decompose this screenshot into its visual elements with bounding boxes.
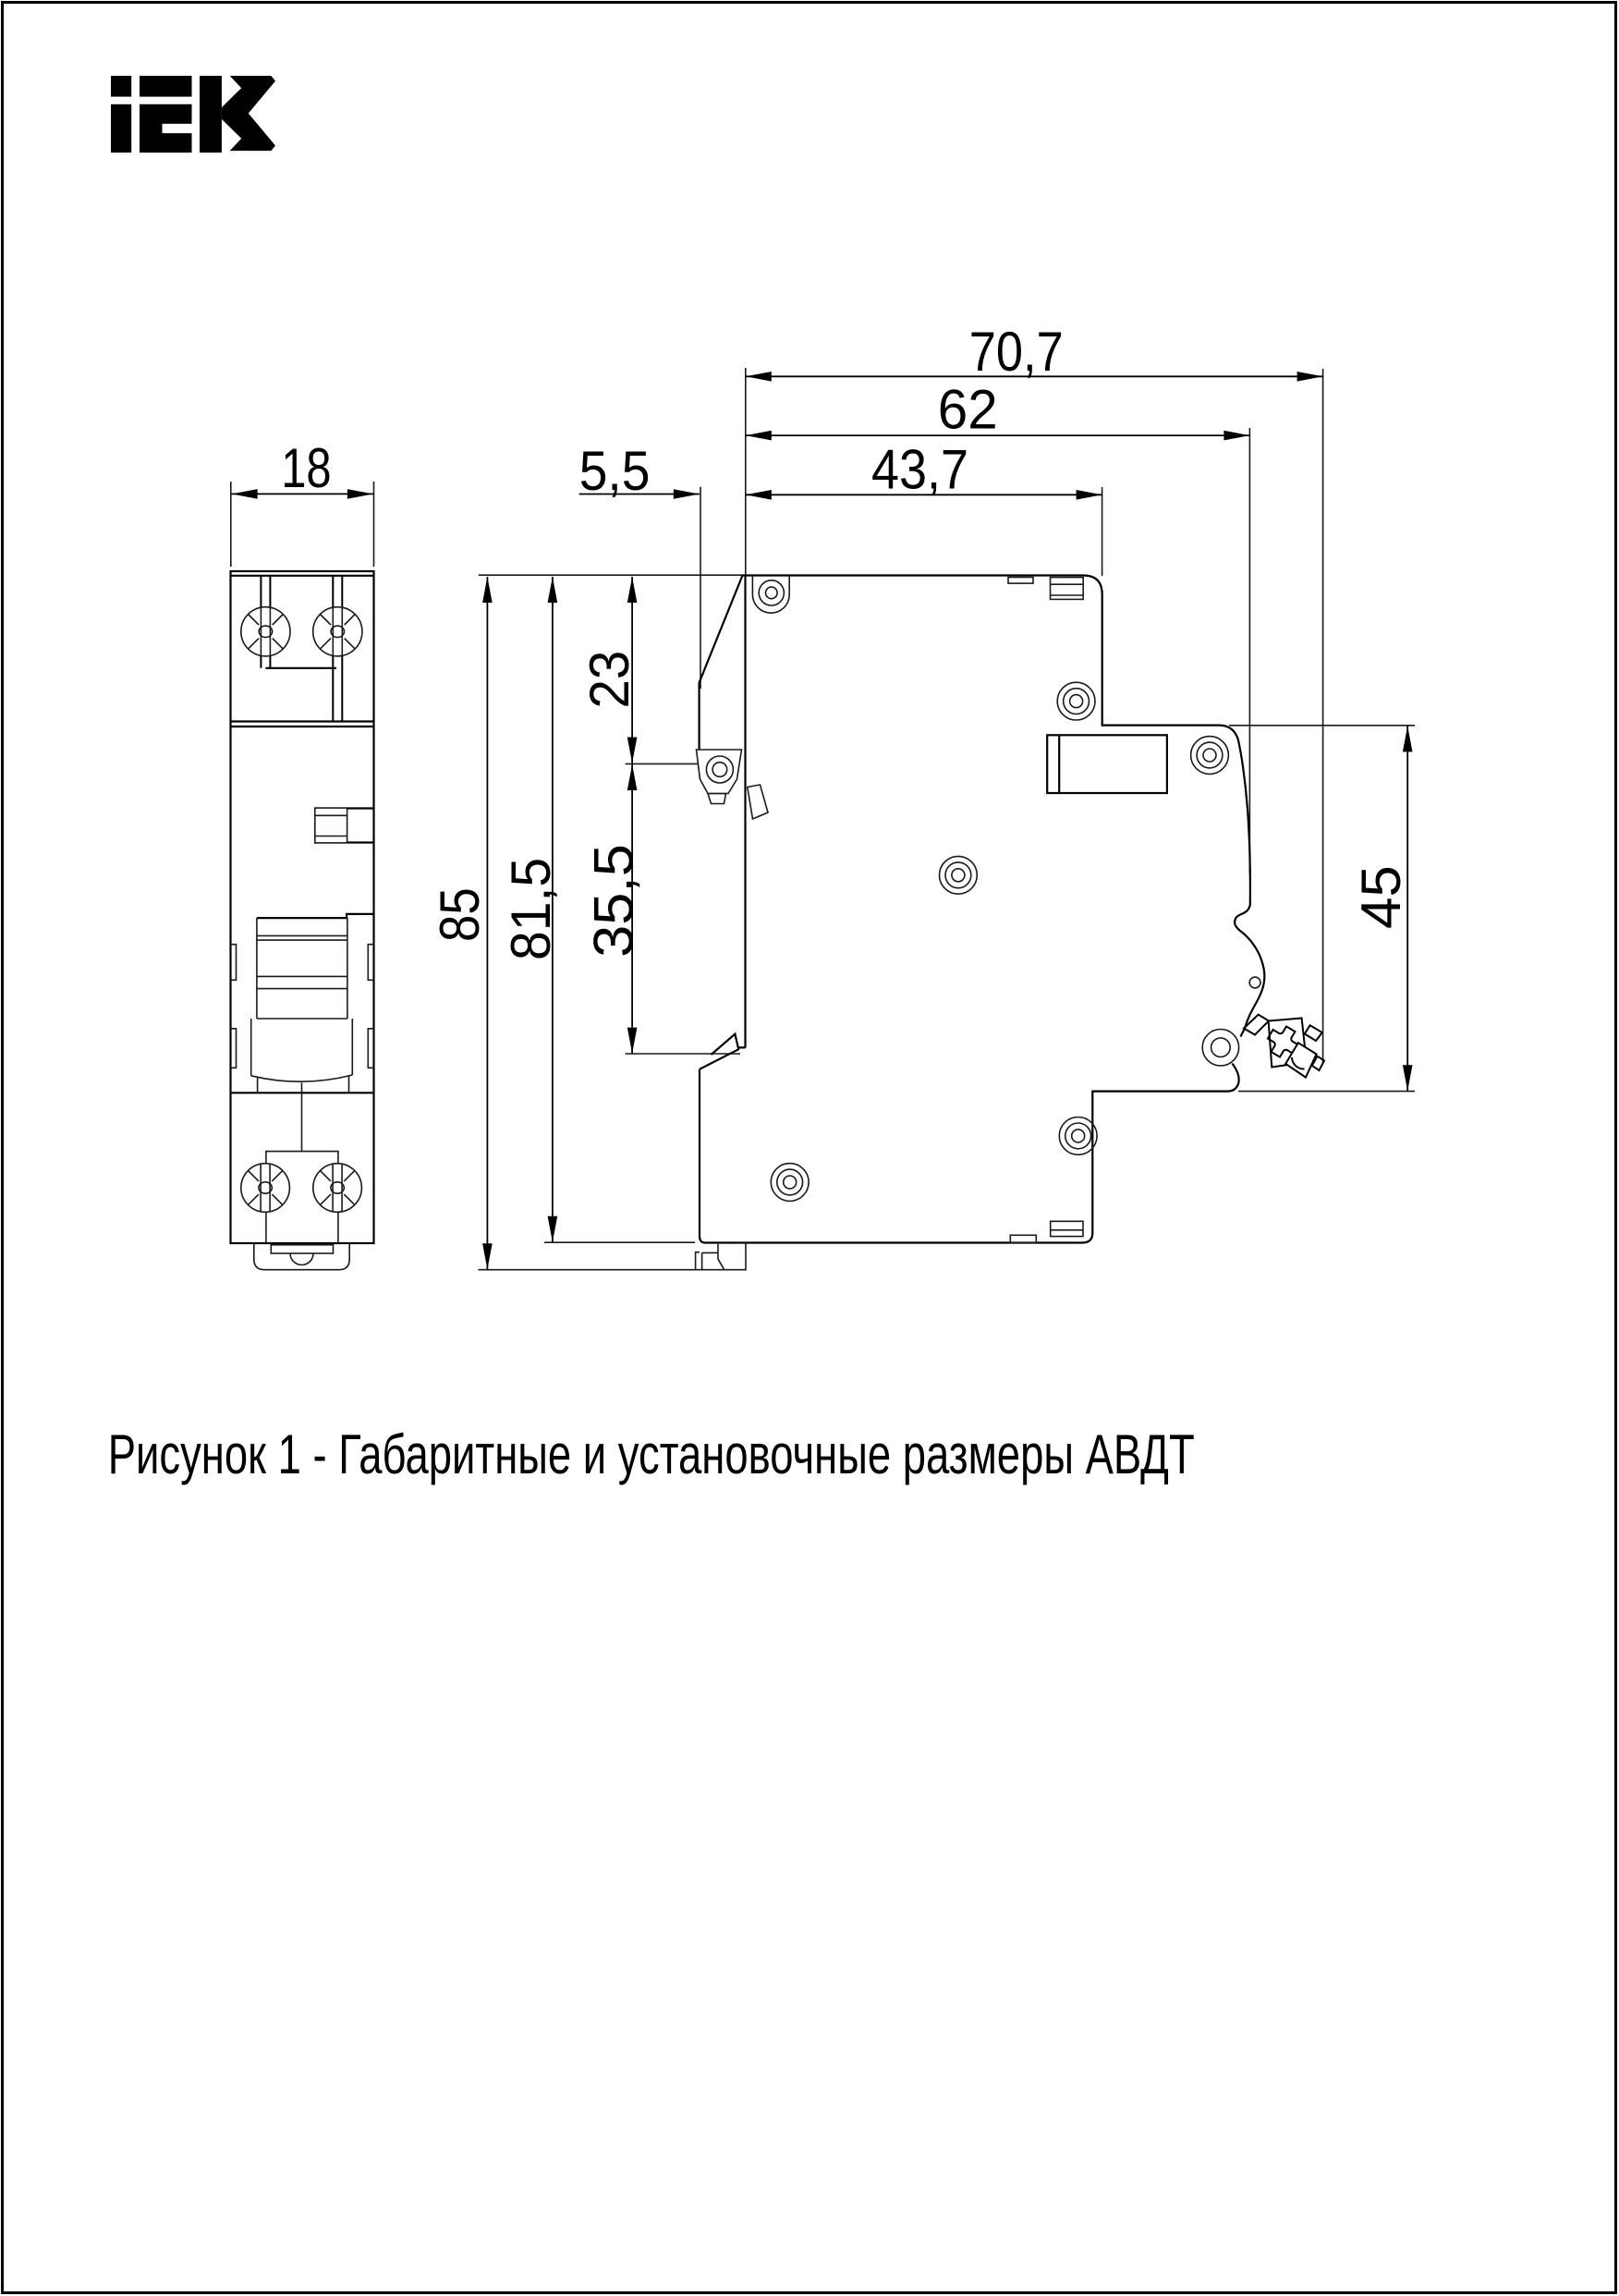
svg-text:5,5: 5,5 <box>579 440 651 502</box>
svg-text:85: 85 <box>429 887 491 942</box>
svg-text:18: 18 <box>281 437 331 499</box>
svg-text:43,7: 43,7 <box>871 439 968 501</box>
svg-text:62: 62 <box>938 379 998 441</box>
svg-text:70,7: 70,7 <box>969 321 1064 383</box>
svg-text:Рисунок 1 - Габаритные и устан: Рисунок 1 - Габаритные и установочные ра… <box>108 1423 1195 1485</box>
svg-text:35,5: 35,5 <box>582 844 644 958</box>
svg-text:45: 45 <box>1350 865 1412 929</box>
svg-text:23: 23 <box>578 651 640 709</box>
svg-text:81,5: 81,5 <box>500 858 562 960</box>
